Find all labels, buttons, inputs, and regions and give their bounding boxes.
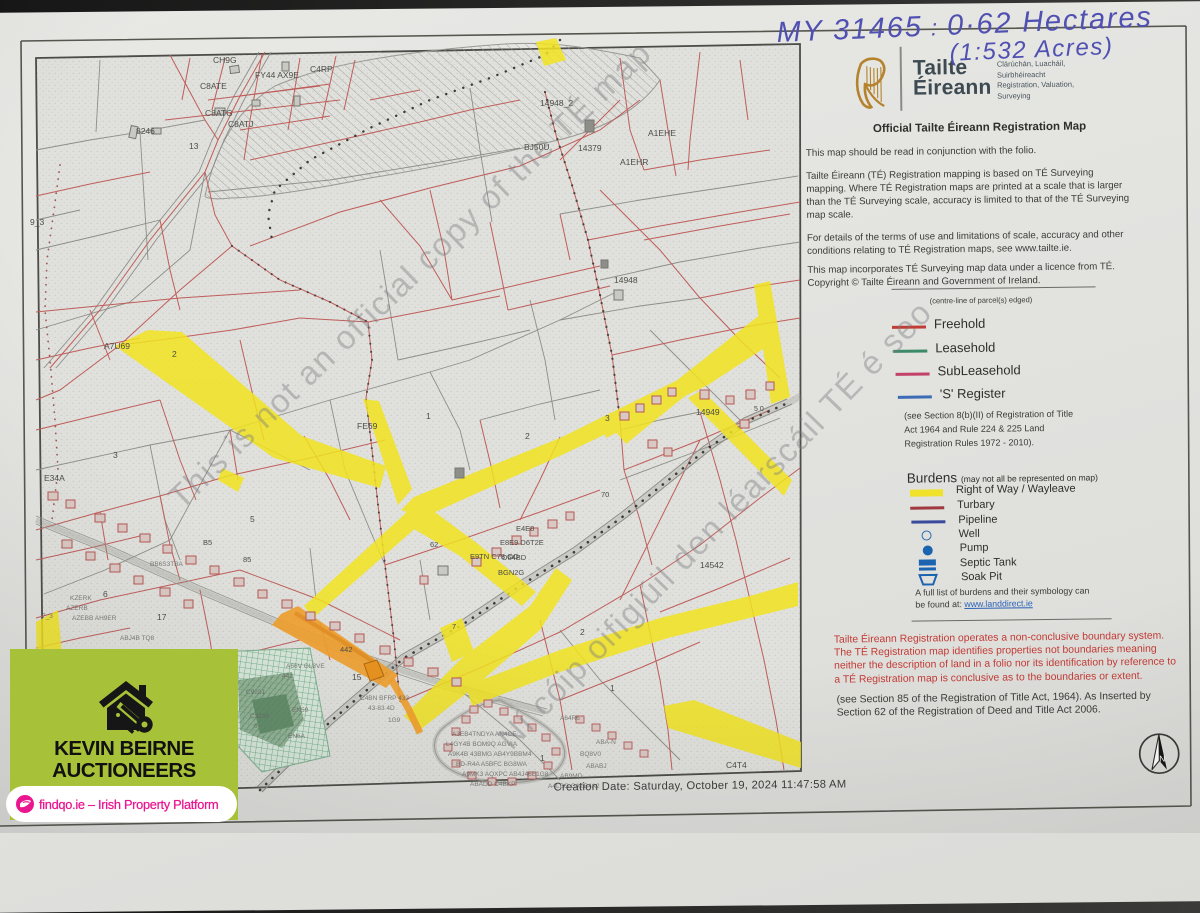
svg-text:7_3: 7_3: [42, 613, 53, 620]
svg-text:14948: 14948: [614, 275, 638, 285]
svg-text:D64BD: D64BD: [502, 553, 527, 562]
svg-text:C8ATE: C8ATE: [200, 81, 227, 91]
svg-text:E34A: E34A: [44, 473, 65, 483]
svg-text:EN59: EN59: [292, 707, 309, 714]
svg-text:1: 1: [426, 411, 431, 421]
svg-text:C8ATJ: C8ATJ: [228, 119, 253, 129]
svg-text:ABA-N: ABA-N: [596, 739, 616, 746]
svg-text:2: 2: [525, 431, 530, 441]
svg-text:C8ATG: C8ATG: [205, 108, 233, 118]
svg-text:CH9G: CH9G: [213, 55, 237, 65]
svg-text:ABABJ: ABABJ: [586, 763, 607, 770]
svg-text:BQ8V0: BQ8V0: [580, 751, 601, 758]
svg-text:C4RP: C4RP: [310, 64, 333, 74]
svg-text:1G9: 1G9: [388, 717, 401, 724]
svg-text:AZERB: AZERB: [66, 605, 88, 612]
svg-text:7: 7: [452, 622, 456, 631]
svg-text:5: 5: [250, 514, 255, 524]
svg-text:ABJ4B TQ8: ABJ4B TQ8: [120, 635, 155, 642]
svg-text:43-83 4D: 43-83 4D: [368, 705, 395, 712]
svg-text:C4T4: C4T4: [726, 760, 747, 770]
svg-text:AZEBB AH9ER: AZEBB AH9ER: [72, 615, 117, 622]
svg-text:BD-R4A A5BFC BG8WA: BD-R4A A5BFC BG8WA: [456, 761, 528, 768]
svg-text:E8E9 D6T2E: E8E9 D6T2E: [500, 538, 544, 547]
svg-text:A66V GL3VE: A66V GL3VE: [286, 663, 325, 670]
svg-text:FE69: FE69: [357, 421, 378, 431]
svg-text:1: 1: [610, 683, 615, 693]
svg-text:3: 3: [605, 413, 610, 423]
svg-text:442: 442: [282, 673, 293, 680]
svg-text:E4E8: E4E8: [516, 524, 534, 533]
svg-text:6: 6: [254, 723, 258, 730]
svg-text:14949: 14949: [696, 407, 720, 417]
svg-text:A64R6: A64R6: [560, 715, 580, 722]
svg-text:6: 6: [103, 589, 108, 599]
svg-text:1: 1: [540, 753, 545, 763]
svg-text:62: 62: [430, 540, 438, 549]
svg-text:EN6A: EN6A: [288, 733, 306, 740]
svg-text:70: 70: [601, 490, 609, 499]
svg-text:14379: 14379: [578, 143, 602, 153]
svg-text:9_3: 9_3: [30, 217, 44, 227]
svg-text:B5: B5: [203, 538, 212, 547]
svg-text:442: 442: [340, 645, 353, 654]
svg-text:C3238: C3238: [250, 713, 270, 720]
svg-text:A1EHE: A1EHE: [648, 128, 676, 138]
svg-text:15: 15: [352, 672, 362, 682]
svg-text:17: 17: [157, 612, 167, 622]
svg-text:8246: 8246: [136, 126, 155, 136]
svg-text:A1EHR: A1EHR: [620, 157, 648, 167]
svg-text:A7U69: A7U69: [104, 341, 130, 351]
svg-text:FY44 AX9E: FY44 AX9E: [255, 70, 299, 80]
svg-text:3: 3: [113, 450, 118, 460]
svg-text:AB9MD: AB9MD: [560, 773, 583, 780]
svg-text:2: 2: [172, 349, 177, 359]
svg-text:5 0: 5 0: [754, 406, 764, 413]
svg-text:A9MK3 AQXPC AB4J46E1G8: A9MK3 AQXPC AB4J46E1G8: [462, 771, 549, 778]
svg-text:13: 13: [189, 141, 199, 151]
svg-text:KZERK: KZERK: [70, 595, 92, 602]
svg-text:85: 85: [243, 555, 251, 564]
svg-text:BGN2G: BGN2G: [498, 568, 524, 577]
svg-text:N: N: [1159, 754, 1165, 764]
svg-text:C9231: C9231: [246, 689, 266, 696]
svg-text:BB6S3TBA: BB6S3TBA: [150, 561, 184, 568]
svg-text:C4BN BFRP 433: C4BN BFRP 433: [360, 695, 409, 702]
